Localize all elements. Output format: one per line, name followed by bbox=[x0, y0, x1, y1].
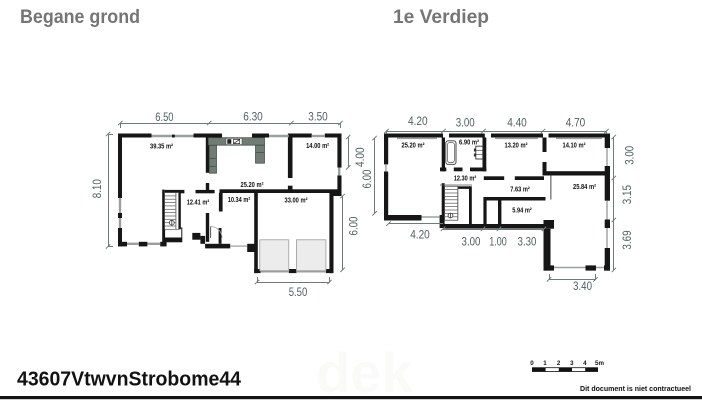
svg-text:3.00: 3.00 bbox=[456, 115, 475, 129]
svg-text:6.30: 6.30 bbox=[243, 110, 263, 124]
svg-text:4.40: 4.40 bbox=[507, 115, 527, 129]
svg-text:3.30: 3.30 bbox=[518, 235, 537, 249]
svg-text:3.50: 3.50 bbox=[308, 110, 328, 124]
svg-text:5.94 m²: 5.94 m² bbox=[512, 208, 532, 215]
svg-text:4.20: 4.20 bbox=[410, 227, 430, 241]
svg-text:Dit document is niet contractu: Dit document is niet contractueel bbox=[580, 384, 691, 393]
svg-text:5.50: 5.50 bbox=[289, 285, 308, 299]
svg-text:1.00: 1.00 bbox=[489, 235, 507, 249]
svg-text:13.20 m²: 13.20 m² bbox=[505, 143, 529, 150]
svg-text:3.00: 3.00 bbox=[462, 235, 481, 249]
svg-text:4: 4 bbox=[583, 360, 587, 367]
svg-text:25.20 m²: 25.20 m² bbox=[241, 182, 265, 189]
svg-text:6.00: 6.00 bbox=[360, 169, 374, 188]
svg-text:4.20: 4.20 bbox=[408, 114, 428, 128]
svg-text:12.41 m²: 12.41 m² bbox=[187, 200, 210, 207]
svg-text:4.70: 4.70 bbox=[566, 115, 586, 129]
svg-text:Begane grond: Begane grond bbox=[20, 7, 140, 28]
svg-text:3: 3 bbox=[570, 360, 574, 367]
svg-text:6.90 m²: 6.90 m² bbox=[459, 140, 480, 147]
svg-text:14.00 m²: 14.00 m² bbox=[306, 143, 330, 150]
svg-text:33.00 m²: 33.00 m² bbox=[285, 198, 309, 205]
svg-text:39.35 m²: 39.35 m² bbox=[150, 144, 174, 151]
svg-text:6.50: 6.50 bbox=[155, 110, 173, 124]
svg-text:12.30 m²: 12.30 m² bbox=[454, 176, 477, 183]
svg-text:8.10: 8.10 bbox=[90, 179, 104, 198]
svg-text:0: 0 bbox=[530, 360, 534, 367]
svg-text:2: 2 bbox=[557, 360, 561, 367]
svg-text:1e Verdiep: 1e Verdiep bbox=[393, 7, 489, 28]
svg-text:3.40: 3.40 bbox=[573, 279, 592, 293]
svg-text:43607VtwvnStrobome44: 43607VtwvnStrobome44 bbox=[17, 368, 242, 390]
svg-text:1: 1 bbox=[543, 360, 547, 367]
svg-text:4.00: 4.00 bbox=[353, 147, 367, 167]
svg-text:3.00: 3.00 bbox=[623, 146, 637, 165]
svg-text:dek: dek bbox=[316, 341, 413, 400]
svg-text:6.00: 6.00 bbox=[347, 216, 361, 235]
svg-text:25.84 m²: 25.84 m² bbox=[573, 184, 597, 191]
svg-text:25.20 m²: 25.20 m² bbox=[402, 143, 426, 150]
svg-text:10.34 m²: 10.34 m² bbox=[228, 197, 251, 204]
svg-text:5m: 5m bbox=[595, 360, 604, 367]
svg-text:3.69: 3.69 bbox=[620, 230, 634, 249]
svg-text:3.15: 3.15 bbox=[620, 185, 634, 204]
svg-text:14.10 m²: 14.10 m² bbox=[563, 143, 587, 150]
svg-text:7.63 m²: 7.63 m² bbox=[510, 187, 530, 194]
